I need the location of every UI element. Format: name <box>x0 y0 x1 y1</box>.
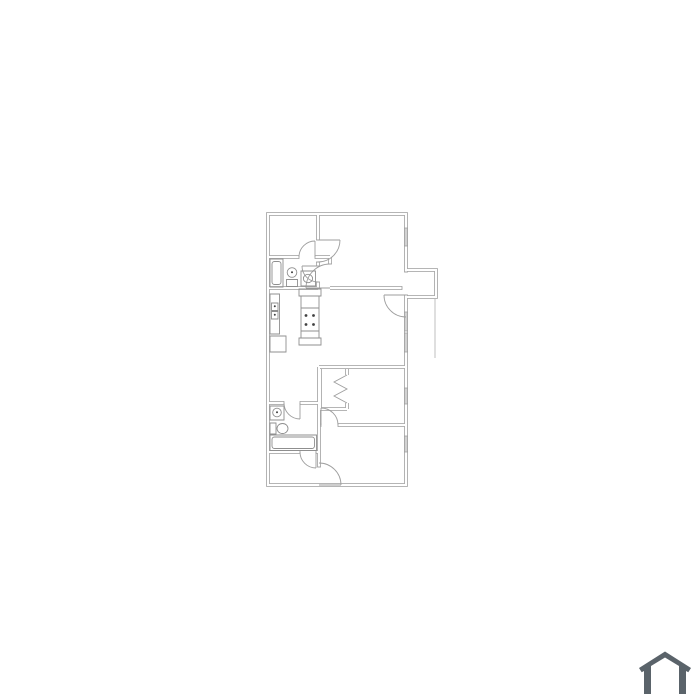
house-logo-icon <box>639 652 691 695</box>
floor-plan-page <box>0 0 700 700</box>
floor-plan-svg <box>0 0 700 700</box>
wall-lines-core <box>268 214 436 485</box>
refrigerator-icon <box>270 336 286 352</box>
door-jamb-ticks <box>284 240 408 467</box>
toilet-upper-icon <box>287 268 298 287</box>
bathtub-upper-icon <box>270 259 283 287</box>
apartment-floor-plan <box>268 214 436 485</box>
fixture-drain-dots <box>275 272 292 412</box>
toilet-lower-icon <box>270 423 288 434</box>
stove-burner-dots <box>306 316 314 325</box>
bathtub-lower-icon <box>270 435 317 451</box>
range-island-icon <box>299 289 321 345</box>
wall-lines <box>268 214 436 485</box>
closet-bifold-doors-icon <box>334 375 347 403</box>
